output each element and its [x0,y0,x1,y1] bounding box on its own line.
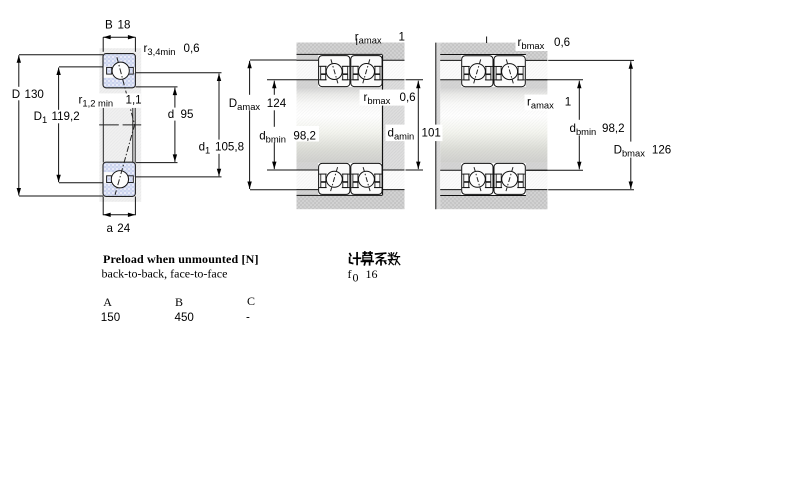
svg-text:98,2: 98,2 [293,130,316,143]
svg-text:B18: B18 [105,18,130,31]
svg-text:C: C [247,294,255,308]
svg-text:D130: D130 [12,88,44,101]
svg-text:0: 0 [353,271,359,285]
svg-text:16: 16 [366,267,378,281]
svg-text:Preload when unmounted [N]: Preload when unmounted [N] [103,252,259,266]
svg-text:150: 150 [101,311,120,324]
svg-text:101: 101 [422,127,441,140]
svg-text:B: B [175,295,183,309]
svg-text:back-to-back, face-to-face: back-to-back, face-to-face [102,266,228,280]
svg-text:-: - [246,311,250,324]
svg-text:D1119,2: D1119,2 [34,110,80,125]
svg-text:a24: a24 [107,222,131,235]
svg-text:d95: d95 [168,108,194,121]
svg-text:450: 450 [175,311,194,324]
svg-text:A: A [103,295,112,309]
svg-text:f: f [348,267,352,281]
